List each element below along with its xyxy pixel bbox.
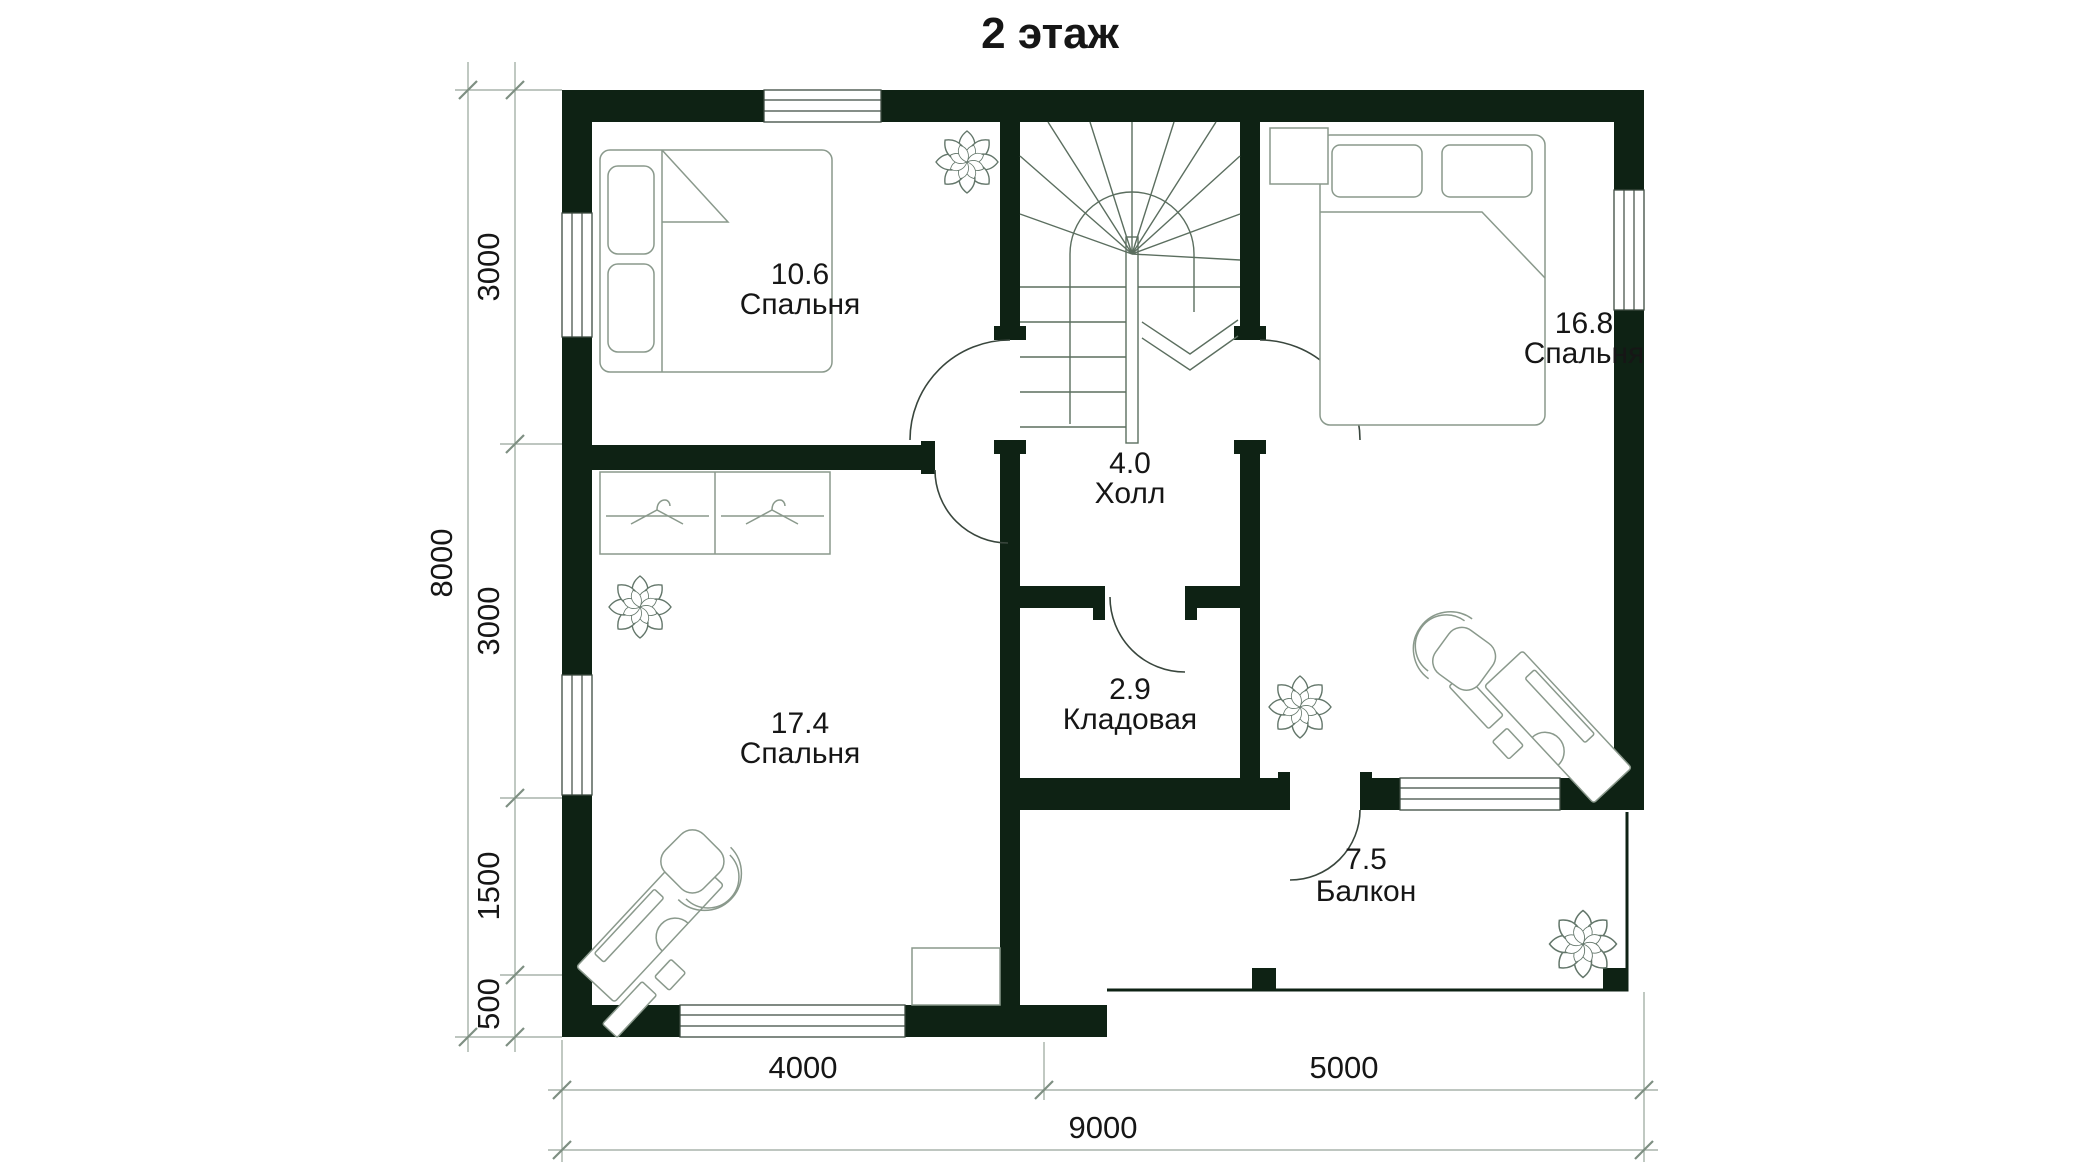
room-label-hall: 4.0 Холл (1095, 447, 1166, 510)
balcony-post (1252, 968, 1276, 990)
dimension-label: 1500 (471, 852, 506, 921)
nightstand (1270, 128, 1328, 184)
opening-storage (1105, 584, 1185, 610)
room-name-label: Спальня (740, 288, 861, 321)
opening-bedroom-top-left (1000, 338, 1020, 442)
room-area-value: 2.9 (1109, 673, 1151, 706)
pillow (1332, 145, 1422, 197)
opening-balcony (1290, 776, 1360, 812)
page-title: 2 этаж (981, 9, 1119, 58)
dimension-label: 3000 (471, 587, 506, 656)
dimensions-left: 8000 3000 3000 1500 500 (424, 62, 562, 1052)
dresser (912, 948, 1000, 1005)
dimension-label: 5000 (1310, 1050, 1379, 1085)
plant-icon (609, 576, 671, 638)
floor-plan-page: 10.6 Спальня 16.8 Спальня 4.0 Холл 2.9 К… (0, 0, 2080, 1170)
room-area-value: 7.5 (1345, 843, 1387, 876)
bed-bedroom-right (1270, 128, 1545, 425)
wall-top (562, 90, 1644, 122)
balcony-post (1603, 968, 1627, 990)
room-area-value: 4.0 (1109, 447, 1151, 480)
room-name-label: Спальня (740, 737, 861, 770)
pillow (1442, 145, 1532, 197)
room-name-label: Балкон (1316, 875, 1417, 908)
stair-break-line (1142, 320, 1238, 354)
room-name-label: Холл (1095, 477, 1166, 510)
room-name-label: Спальня (1524, 337, 1645, 370)
room-name-label: Кладовая (1063, 703, 1197, 736)
plant-icon (1269, 676, 1331, 738)
staircase (1020, 122, 1240, 443)
window-balcony (1400, 778, 1560, 810)
dimension-label: 500 (471, 978, 506, 1030)
door-arc-bedroom-bottom-left (935, 470, 1008, 543)
window-top (764, 90, 881, 122)
dimension-label: 3000 (471, 233, 506, 302)
door-openings (1000, 338, 1360, 812)
dimension-label-total-width: 9000 (1069, 1110, 1138, 1145)
wardrobe (600, 472, 830, 554)
window-right (1614, 190, 1644, 310)
pillow (608, 264, 654, 352)
stair-break-line (1142, 336, 1238, 370)
opening-bedroom-right (1240, 338, 1260, 442)
room-area-value: 16.8 (1555, 307, 1613, 340)
pillow (608, 166, 654, 254)
room-label-bedroom-bottom-left: 17.4 Спальня (740, 707, 861, 770)
plant-icon (1550, 911, 1617, 978)
room-label-storage: 2.9 Кладовая (1063, 673, 1197, 736)
window-bottom (680, 1005, 905, 1037)
floor-plan-canvas: 10.6 Спальня 16.8 Спальня 4.0 Холл 2.9 К… (0, 0, 2080, 1170)
wall-stairwell-left (1000, 122, 1020, 1005)
dimension-label-total-height: 8000 (424, 529, 459, 598)
room-area-value: 17.4 (771, 707, 829, 740)
plant-icon (936, 131, 998, 193)
wall-bedrooms-divider (592, 445, 935, 470)
window-left-bottom (562, 675, 592, 795)
room-area-value: 10.6 (771, 258, 829, 291)
dimension-label: 4000 (769, 1050, 838, 1085)
window-left-top (562, 213, 592, 337)
door-jambs (921, 326, 1372, 810)
room-label-balcony: 7.5 Балкон (1316, 843, 1417, 908)
door-arc-bedroom-top-left (910, 340, 1010, 440)
